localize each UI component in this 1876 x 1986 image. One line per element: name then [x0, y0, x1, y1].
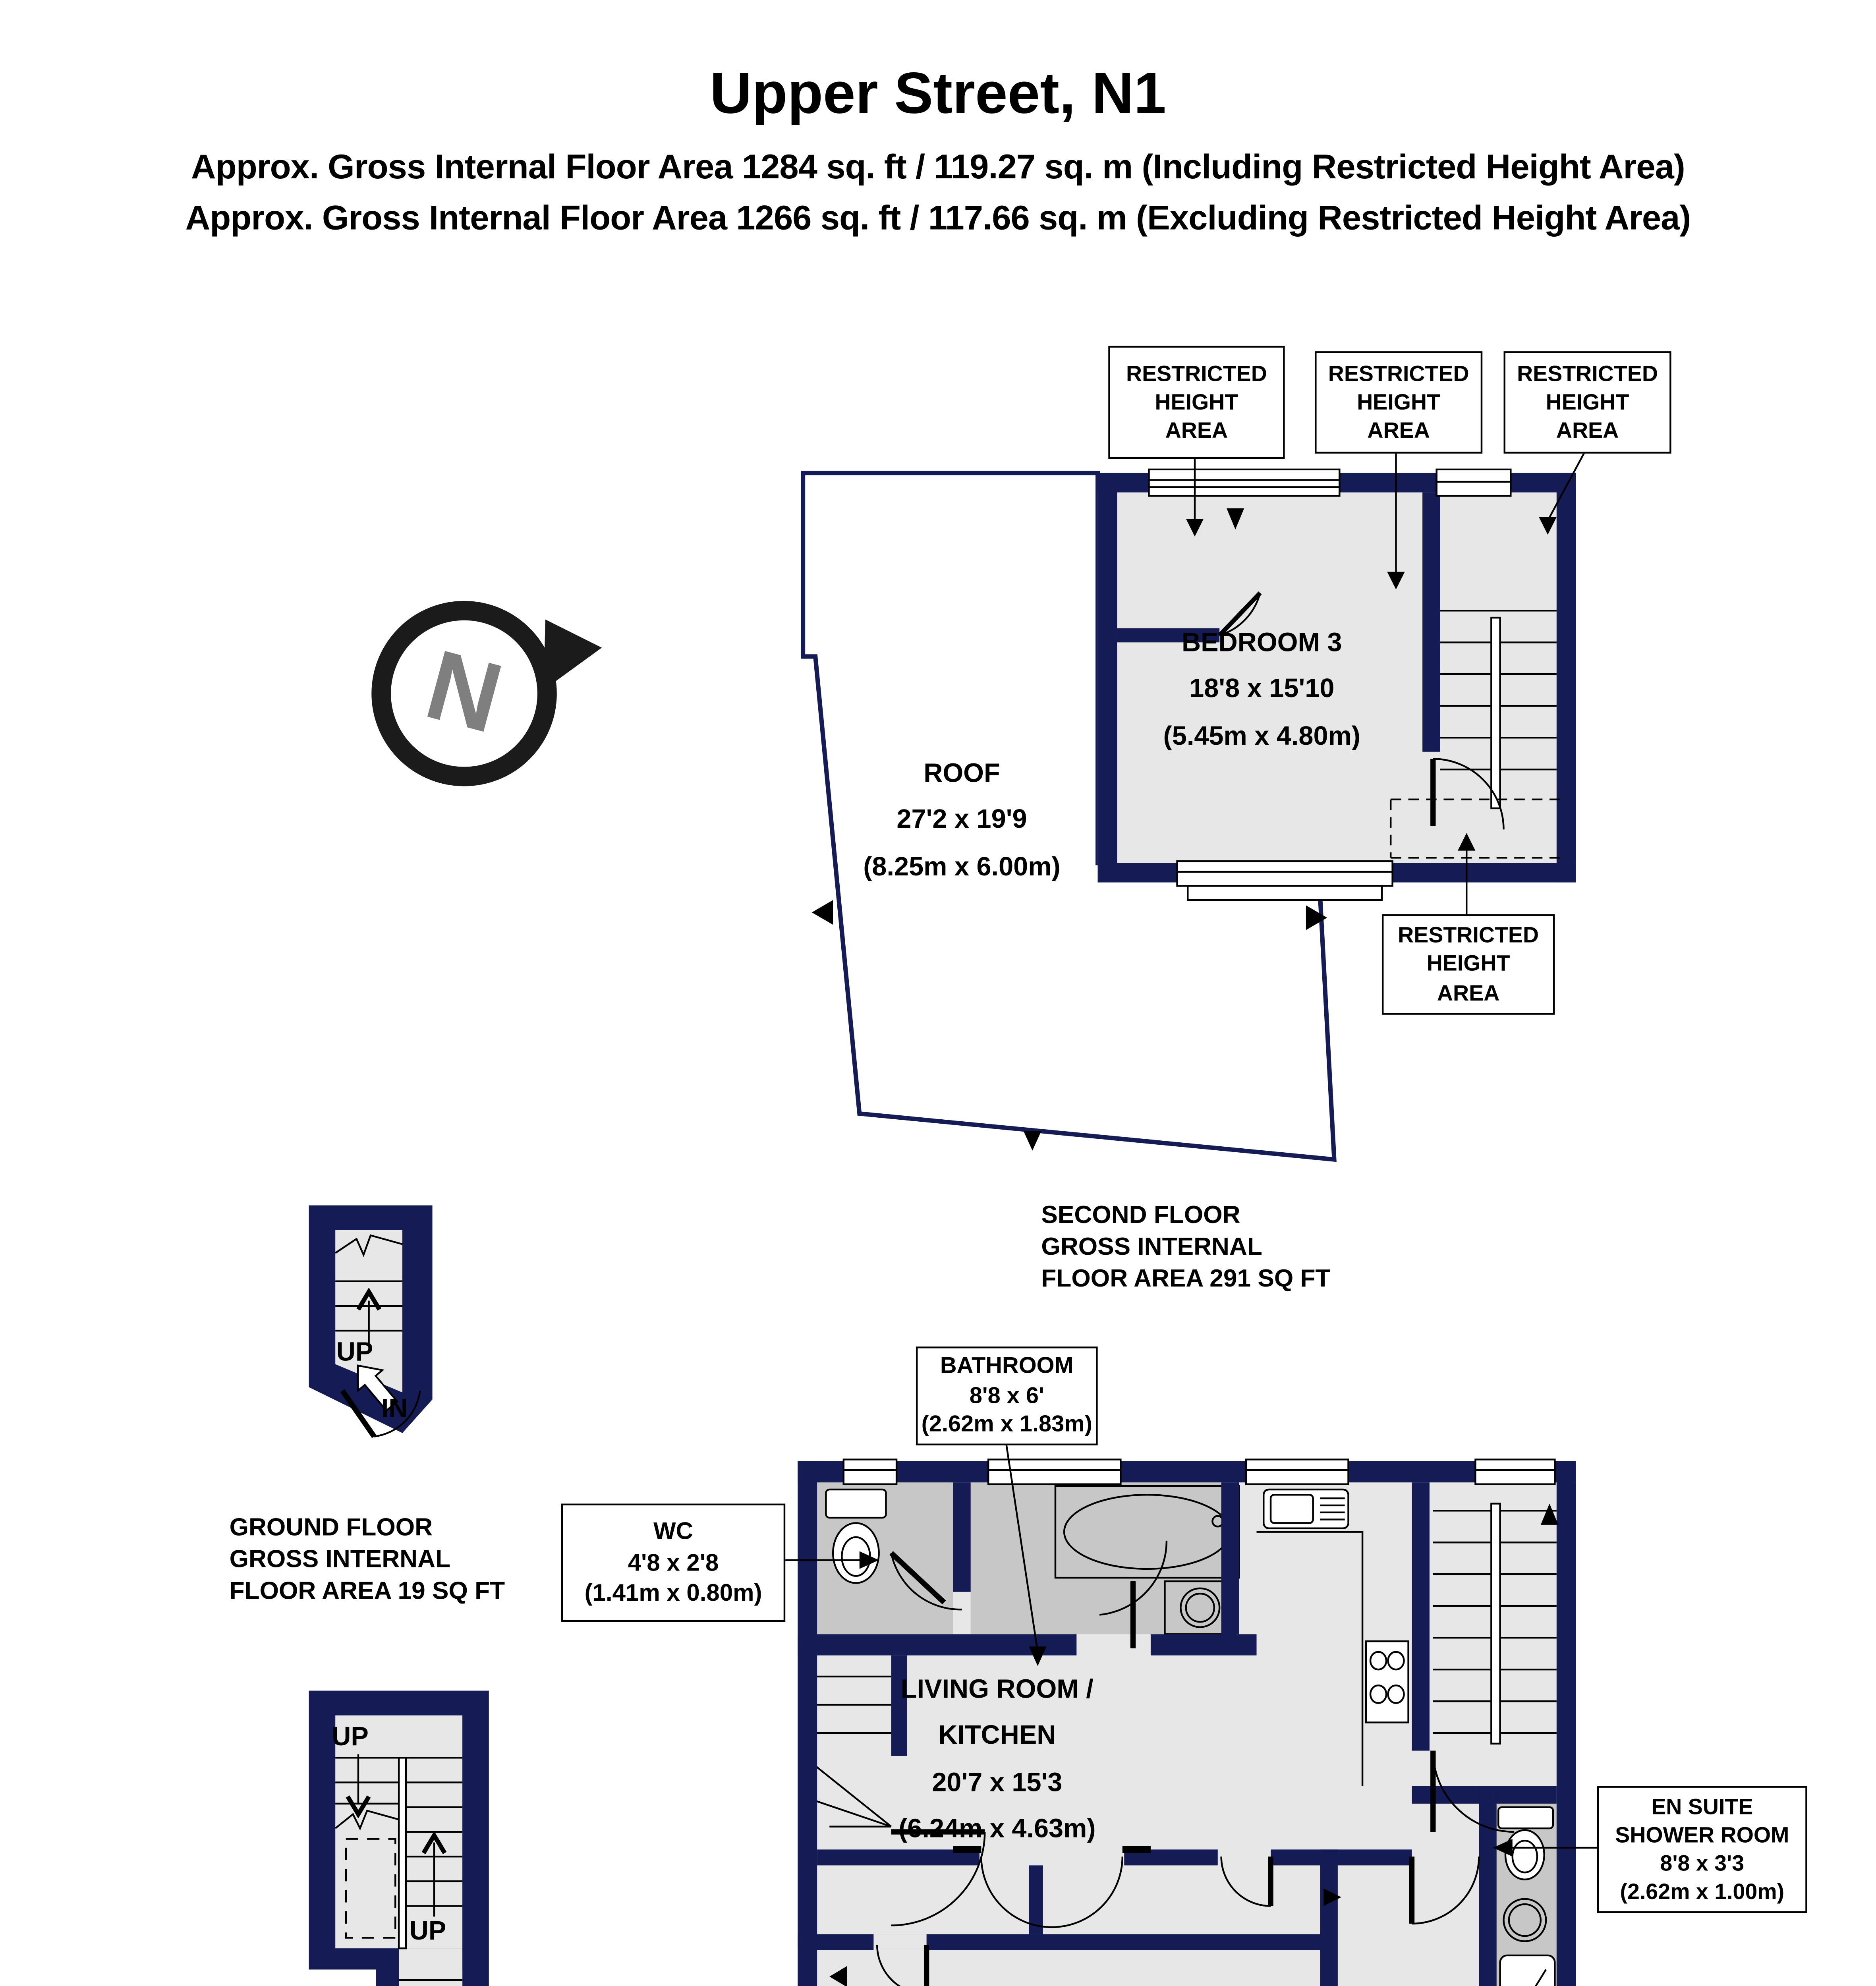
page-title: Upper Street, N1 [0, 60, 1876, 127]
restricted-height-box-4: RESTRICTED HEIGHT AREA [1382, 914, 1555, 1015]
bedroom3-label: BEDROOM 3 18'8 x 15'10 (5.45m x 4.80m) [1086, 621, 1439, 760]
entry-up-label: UP [328, 1338, 381, 1368]
bathroom-floor [971, 1482, 1239, 1634]
shower-tray-icon [1500, 1955, 1555, 1986]
restricted-height-box-1: RESTRICTED HEIGHT AREA [1108, 346, 1285, 459]
second-floor-caption: SECOND FLOOR GROSS INTERNAL FLOOR AREA 2… [1041, 1198, 1330, 1294]
entry-in-label: IN [381, 1394, 408, 1424]
ground-entry-caption: GROUND FLOOR GROSS INTERNAL FLOOR AREA 1… [230, 1511, 505, 1607]
living-kitchen-label: LIVING ROOM / KITCHEN 20'7 x 15'3 (6.24m… [821, 1668, 1174, 1853]
restricted-height-box-2: RESTRICTED HEIGHT AREA [1315, 351, 1482, 454]
bathroom-label: BATHROOM 8'8 x 6' (2.62m x 1.83m) [916, 1347, 1098, 1445]
ground-floor-entry-plan [309, 1206, 433, 1437]
floorplan-page: Upper Street, N1 Approx. Gross Internal … [0, 0, 1876, 1986]
hob-icon [1366, 1641, 1408, 1722]
north-arrow-icon [543, 620, 602, 690]
area-excluding: Approx. Gross Internal Floor Area 1266 s… [0, 199, 1876, 240]
restricted-height-box-3: RESTRICTED HEIGHT AREA [1504, 351, 1671, 454]
ensuite-label: EN SUITE SHOWER ROOM 8'8 x 3'3 (2.62m x … [1597, 1786, 1807, 1913]
wc-label: WC 4'8 x 2'8 (1.41m x 0.80m) [561, 1504, 785, 1622]
main-up-left-label: UP [332, 1722, 384, 1752]
area-including: Approx. Gross Internal Floor Area 1284 s… [0, 148, 1876, 189]
main-up-right-label: UP [410, 1916, 462, 1947]
roof-label: ROOF 27'2 x 19'9 (8.25m x 6.00m) [812, 752, 1112, 891]
